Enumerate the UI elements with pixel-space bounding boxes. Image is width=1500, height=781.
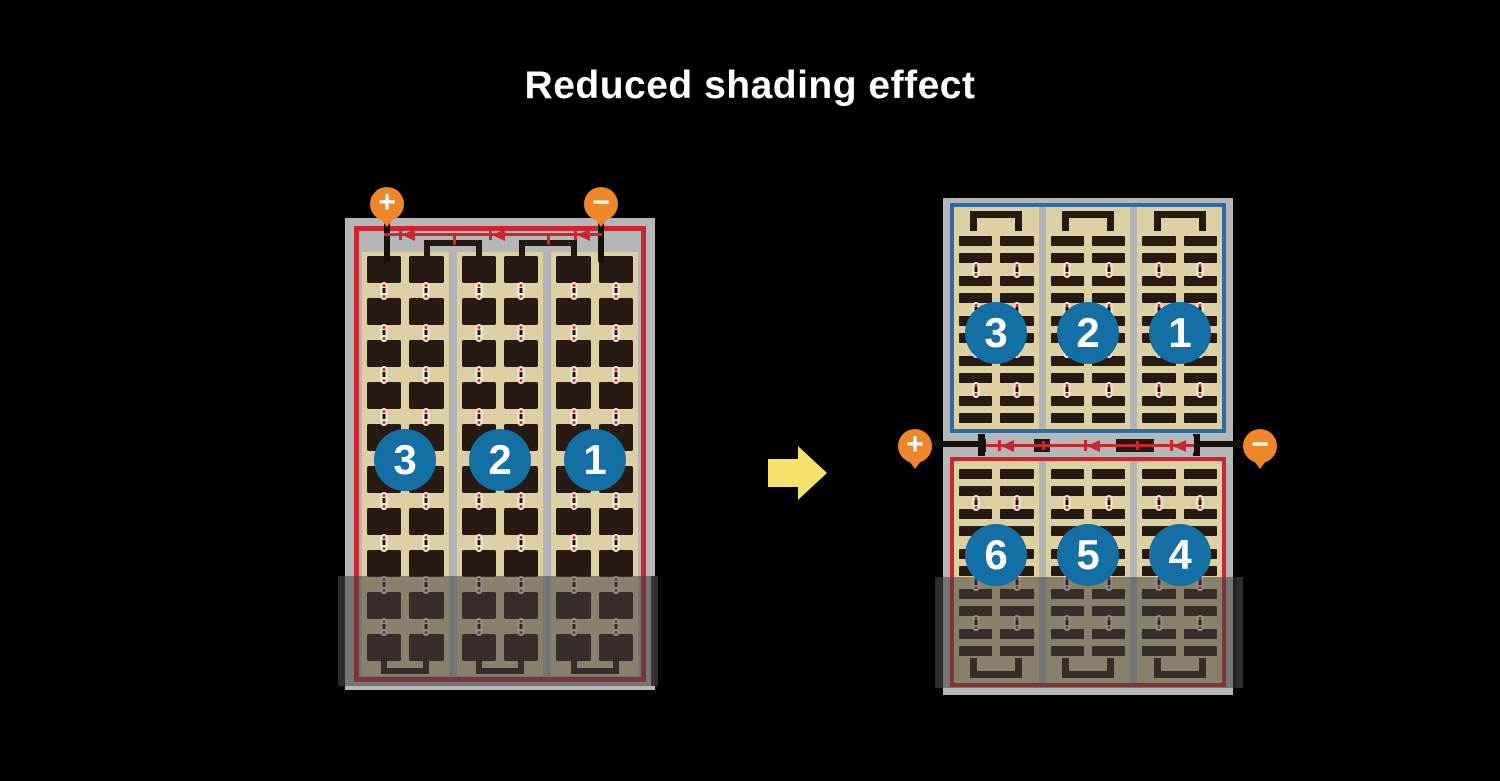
cell-interconnect-rivet bbox=[475, 282, 482, 300]
rivet-dot bbox=[425, 421, 428, 424]
half-cell-row bbox=[1142, 276, 1217, 286]
half-cut-cell bbox=[1092, 509, 1125, 519]
rivet-dot bbox=[1158, 273, 1161, 276]
minus-terminal-label: − bbox=[1251, 430, 1269, 460]
cell-interconnect-rivet bbox=[1013, 382, 1020, 398]
cell-row bbox=[367, 550, 444, 577]
string-number-badge: 2 bbox=[1057, 302, 1119, 364]
rivet-dot bbox=[520, 536, 523, 539]
half-cell-row bbox=[1142, 509, 1217, 519]
half-cut-cell bbox=[959, 413, 992, 423]
rivet-dot bbox=[1066, 273, 1069, 276]
cell-row bbox=[462, 550, 539, 577]
rivet-bar bbox=[1199, 387, 1202, 392]
half-cut-cell bbox=[1051, 396, 1084, 406]
rivet-dot bbox=[614, 295, 617, 298]
cell-interconnect-rivet bbox=[1197, 262, 1204, 278]
solar-cell bbox=[556, 340, 590, 367]
rivet-bar bbox=[477, 330, 480, 335]
half-cell-row bbox=[959, 413, 1034, 423]
half-cut-cell bbox=[1092, 413, 1125, 423]
rivet-dot bbox=[614, 547, 617, 550]
half-cut-cell bbox=[1051, 276, 1084, 286]
cell-interconnect-rivet bbox=[1156, 495, 1163, 511]
rivet-dot bbox=[1107, 506, 1110, 509]
cell-interconnect-rivet bbox=[612, 366, 619, 384]
solar-cell bbox=[367, 508, 401, 535]
rivet-dot bbox=[383, 536, 386, 539]
diode-triangle bbox=[402, 229, 415, 241]
rivet-dot bbox=[520, 379, 523, 382]
half-cut-cell bbox=[1184, 469, 1217, 479]
cell-interconnect-rivet bbox=[381, 366, 388, 384]
cell-interconnect-rivet bbox=[381, 408, 388, 426]
rivet-bar bbox=[1107, 387, 1110, 392]
rivet-dot bbox=[383, 379, 386, 382]
rivet-dot bbox=[477, 368, 480, 371]
rivet-bar bbox=[383, 498, 386, 503]
rivet-dot bbox=[477, 536, 480, 539]
solar-cell bbox=[504, 256, 538, 283]
half-cell-row bbox=[1051, 236, 1126, 246]
string-number-badge: 2 bbox=[469, 429, 531, 491]
cell-row bbox=[462, 382, 539, 409]
cell-interconnect-rivet bbox=[972, 262, 979, 278]
half-cut-cell bbox=[1000, 236, 1033, 246]
rivet-bar bbox=[614, 498, 617, 503]
cell-interconnect-rivet bbox=[1064, 262, 1071, 278]
half-cell-row bbox=[959, 236, 1034, 246]
cell-row bbox=[462, 298, 539, 325]
rivet-dot bbox=[520, 421, 523, 424]
rivet-dot bbox=[520, 368, 523, 371]
shade-overlay bbox=[338, 576, 658, 686]
cell-interconnect-rivet bbox=[475, 324, 482, 342]
rivet-dot bbox=[614, 421, 617, 424]
half-cut-cell bbox=[1184, 236, 1217, 246]
rivet-dot bbox=[614, 536, 617, 539]
half-cut-cell bbox=[1142, 509, 1175, 519]
cell-interconnect-rivet bbox=[381, 282, 388, 300]
cell-row bbox=[462, 508, 539, 535]
solar-cell bbox=[409, 298, 443, 325]
cell-row bbox=[367, 256, 444, 283]
solar-cell bbox=[367, 382, 401, 409]
half-cut-cell bbox=[1092, 236, 1125, 246]
rivet-bar bbox=[477, 498, 480, 503]
bypass-diode-icon bbox=[1084, 440, 1100, 452]
rivet-bar bbox=[383, 540, 386, 545]
rivet-dot bbox=[614, 284, 617, 287]
solar-cell bbox=[462, 508, 496, 535]
cell-interconnect-rivet bbox=[518, 282, 525, 300]
cell-interconnect-rivet bbox=[1156, 382, 1163, 398]
rivet-dot bbox=[974, 506, 977, 509]
rivet-dot bbox=[572, 410, 575, 413]
rivet-bar bbox=[1107, 267, 1110, 272]
rivet-bar bbox=[1015, 500, 1018, 505]
rivet-bar bbox=[614, 330, 617, 335]
half-cell-row bbox=[1051, 373, 1126, 383]
solar-cell bbox=[367, 340, 401, 367]
cell-interconnect-rivet bbox=[475, 534, 482, 552]
cell-interconnect-rivet bbox=[381, 324, 388, 342]
half-cell-row bbox=[1142, 486, 1217, 496]
half-cut-cell bbox=[1092, 469, 1125, 479]
cell-row bbox=[367, 508, 444, 535]
rivet-dot bbox=[520, 547, 523, 550]
cell-row bbox=[462, 340, 539, 367]
rivet-bar bbox=[1015, 267, 1018, 272]
rivet-dot bbox=[477, 326, 480, 329]
rivet-dot bbox=[383, 494, 386, 497]
solar-cell bbox=[599, 508, 633, 535]
solar-cell bbox=[599, 340, 633, 367]
diode-triangle bbox=[492, 229, 505, 241]
rivet-dot bbox=[572, 295, 575, 298]
rivet-dot bbox=[425, 337, 428, 340]
rivet-bar bbox=[974, 267, 977, 272]
rivet-bar bbox=[572, 498, 575, 503]
rivet-dot bbox=[1066, 393, 1069, 396]
rivet-bar bbox=[1158, 267, 1161, 272]
half-cut-cell bbox=[1051, 469, 1084, 479]
rivet-dot bbox=[1066, 506, 1069, 509]
cell-interconnect-rivet bbox=[1064, 382, 1071, 398]
rivet-dot bbox=[572, 494, 575, 497]
diode-triangle bbox=[1001, 440, 1014, 452]
cell-interconnect-rivet bbox=[423, 492, 430, 510]
rivet-dot bbox=[383, 284, 386, 287]
cell-interconnect-rivet bbox=[475, 366, 482, 384]
bypass-diode-line bbox=[384, 233, 602, 236]
half-cell-row bbox=[1142, 396, 1217, 406]
rivet-bar bbox=[1066, 267, 1069, 272]
half-cell-row bbox=[959, 486, 1034, 496]
cell-interconnect-rivet bbox=[570, 492, 577, 510]
string-top-connector bbox=[1154, 211, 1206, 231]
rivet-bar bbox=[425, 372, 428, 377]
cell-interconnect-rivet bbox=[381, 492, 388, 510]
rivet-dot bbox=[1199, 393, 1202, 396]
cell-interconnect-rivet bbox=[612, 324, 619, 342]
rivet-dot bbox=[614, 410, 617, 413]
minus-terminal-icon: − bbox=[584, 187, 618, 221]
rivet-dot bbox=[974, 273, 977, 276]
cell-row bbox=[556, 340, 633, 367]
half-cut-cell bbox=[959, 509, 992, 519]
bypass-diode-icon bbox=[574, 229, 590, 241]
rivet-dot bbox=[425, 295, 428, 298]
rivet-dot bbox=[572, 326, 575, 329]
rivet-bar bbox=[572, 372, 575, 377]
diode-line-stub bbox=[453, 236, 456, 245]
rivet-dot bbox=[425, 536, 428, 539]
solar-cell bbox=[409, 256, 443, 283]
rivet-dot bbox=[572, 379, 575, 382]
rivet-dot bbox=[614, 505, 617, 508]
rivet-dot bbox=[520, 326, 523, 329]
rivet-dot bbox=[614, 368, 617, 371]
half-cell-row bbox=[959, 373, 1034, 383]
rivet-dot bbox=[1107, 273, 1110, 276]
rivet-dot bbox=[477, 547, 480, 550]
plus-terminal-label: + bbox=[906, 430, 924, 460]
transition-arrow-head bbox=[798, 446, 827, 500]
cell-interconnect-rivet bbox=[570, 324, 577, 342]
cell-interconnect-rivet bbox=[423, 324, 430, 342]
half-cut-cell bbox=[1000, 469, 1033, 479]
cell-interconnect-rivet bbox=[423, 282, 430, 300]
rivet-dot bbox=[477, 410, 480, 413]
plus-terminal-label: + bbox=[378, 188, 396, 218]
solar-cell bbox=[556, 256, 590, 283]
rivet-dot bbox=[572, 284, 575, 287]
cell-interconnect-rivet bbox=[570, 534, 577, 552]
half-cell-row bbox=[1051, 276, 1126, 286]
solar-cell bbox=[409, 340, 443, 367]
diode-line-tick bbox=[1042, 441, 1045, 450]
rivet-dot bbox=[383, 337, 386, 340]
rivet-dot bbox=[383, 421, 386, 424]
rivet-bar bbox=[974, 387, 977, 392]
half-cut-cell bbox=[959, 276, 992, 286]
cell-interconnect-rivet bbox=[381, 534, 388, 552]
string-number-badge: 1 bbox=[564, 429, 626, 491]
rivet-dot bbox=[572, 505, 575, 508]
bypass-diode-line bbox=[986, 444, 1194, 447]
half-cell-row bbox=[1142, 236, 1217, 246]
rivet-bar bbox=[1199, 267, 1202, 272]
rivet-dot bbox=[477, 379, 480, 382]
cell-interconnect-rivet bbox=[423, 534, 430, 552]
solar-cell bbox=[556, 382, 590, 409]
rivet-dot bbox=[520, 494, 523, 497]
cell-row bbox=[367, 382, 444, 409]
half-cut-cell bbox=[1000, 413, 1033, 423]
half-cell-row bbox=[959, 276, 1034, 286]
rivet-bar bbox=[1158, 500, 1161, 505]
half-cut-cell bbox=[1184, 509, 1217, 519]
rivet-bar bbox=[383, 414, 386, 419]
rivet-bar bbox=[425, 330, 428, 335]
bypass-diode-icon bbox=[489, 229, 505, 241]
cell-interconnect-rivet bbox=[1197, 382, 1204, 398]
rivet-bar bbox=[520, 288, 523, 293]
cell-row bbox=[367, 340, 444, 367]
rivet-dot bbox=[383, 295, 386, 298]
rivet-dot bbox=[477, 494, 480, 497]
rivet-dot bbox=[425, 410, 428, 413]
rivet-bar bbox=[572, 540, 575, 545]
cell-interconnect-rivet bbox=[475, 492, 482, 510]
cell-interconnect-rivet bbox=[1197, 495, 1204, 511]
half-cut-cell bbox=[1142, 236, 1175, 246]
rivet-dot bbox=[1199, 506, 1202, 509]
cell-row bbox=[556, 256, 633, 283]
half-cut-cell bbox=[1092, 396, 1125, 406]
rivet-dot bbox=[477, 284, 480, 287]
half-cut-cell bbox=[1092, 276, 1125, 286]
cell-interconnect-rivet bbox=[612, 534, 619, 552]
minus-terminal-label: − bbox=[592, 188, 610, 218]
solar-cell bbox=[409, 382, 443, 409]
half-cell-row bbox=[1051, 413, 1126, 423]
cell-row bbox=[556, 550, 633, 577]
solar-cell bbox=[599, 298, 633, 325]
solar-cell bbox=[556, 298, 590, 325]
cell-interconnect-rivet bbox=[1156, 262, 1163, 278]
half-cut-cell bbox=[1184, 276, 1217, 286]
rivet-dot bbox=[520, 505, 523, 508]
rivet-dot bbox=[614, 379, 617, 382]
cell-row bbox=[556, 298, 633, 325]
solar-cell bbox=[599, 382, 633, 409]
solar-cell bbox=[409, 550, 443, 577]
string-divider bbox=[1039, 207, 1046, 429]
solar-cell bbox=[462, 340, 496, 367]
rivet-dot bbox=[1015, 506, 1018, 509]
string-top-connector bbox=[1062, 211, 1114, 231]
rivet-dot bbox=[1158, 506, 1161, 509]
rivet-bar bbox=[614, 372, 617, 377]
rivet-bar bbox=[1015, 387, 1018, 392]
rivet-dot bbox=[614, 326, 617, 329]
rivet-dot bbox=[477, 421, 480, 424]
cell-interconnect-rivet bbox=[1013, 262, 1020, 278]
rivet-bar bbox=[477, 414, 480, 419]
diagram-title: Reduced shading effect bbox=[0, 64, 1500, 108]
rivet-bar bbox=[520, 540, 523, 545]
rivet-dot bbox=[425, 494, 428, 497]
half-cell-row bbox=[1051, 396, 1126, 406]
shade-overlay bbox=[935, 577, 1243, 688]
half-cut-cell bbox=[1000, 509, 1033, 519]
cell-interconnect-rivet bbox=[475, 408, 482, 426]
half-cell-row bbox=[1051, 253, 1126, 263]
diode-triangle bbox=[1173, 440, 1186, 452]
cell-interconnect-rivet bbox=[518, 366, 525, 384]
rivet-bar bbox=[477, 288, 480, 293]
half-cut-cell bbox=[1051, 509, 1084, 519]
string-divider bbox=[1130, 207, 1137, 429]
solar-cell bbox=[599, 550, 633, 577]
rivet-bar bbox=[425, 540, 428, 545]
transition-arrow bbox=[768, 459, 799, 487]
rivet-dot bbox=[1158, 393, 1161, 396]
solar-cell bbox=[462, 256, 496, 283]
string-number-badge: 4 bbox=[1149, 524, 1211, 586]
rivet-dot bbox=[477, 505, 480, 508]
rivet-bar bbox=[383, 372, 386, 377]
half-cut-cell bbox=[959, 236, 992, 246]
rivet-dot bbox=[1015, 393, 1018, 396]
cell-interconnect-rivet bbox=[518, 534, 525, 552]
rivet-bar bbox=[1066, 387, 1069, 392]
half-cut-cell bbox=[959, 396, 992, 406]
cell-interconnect-rivet bbox=[570, 408, 577, 426]
half-cut-cell bbox=[1051, 413, 1084, 423]
half-cell-row bbox=[1051, 469, 1126, 479]
rivet-dot bbox=[572, 337, 575, 340]
rivet-dot bbox=[383, 547, 386, 550]
positive-lead-wire bbox=[930, 441, 985, 447]
rivet-bar bbox=[520, 414, 523, 419]
rivet-bar bbox=[477, 372, 480, 377]
rivet-bar bbox=[572, 330, 575, 335]
rivet-dot bbox=[572, 536, 575, 539]
solar-cell bbox=[462, 382, 496, 409]
rivet-dot bbox=[1107, 393, 1110, 396]
rivet-dot bbox=[425, 547, 428, 550]
half-cell-row bbox=[1142, 373, 1217, 383]
rivet-bar bbox=[614, 540, 617, 545]
rivet-dot bbox=[425, 284, 428, 287]
rivet-bar bbox=[1158, 387, 1161, 392]
cell-interconnect-rivet bbox=[612, 492, 619, 510]
half-cut-cell bbox=[1142, 276, 1175, 286]
cell-interconnect-rivet bbox=[423, 408, 430, 426]
diode-line-stub bbox=[547, 236, 550, 245]
solar-cell bbox=[556, 550, 590, 577]
half-cut-cell bbox=[1184, 413, 1217, 423]
rivet-dot bbox=[425, 379, 428, 382]
rivet-dot bbox=[425, 368, 428, 371]
rivet-bar bbox=[520, 330, 523, 335]
negative-lead-wire bbox=[1198, 441, 1245, 447]
diode-triangle bbox=[577, 229, 590, 241]
rivet-dot bbox=[520, 337, 523, 340]
cell-interconnect-rivet bbox=[518, 408, 525, 426]
rivet-dot bbox=[572, 368, 575, 371]
solar-cell bbox=[462, 550, 496, 577]
rivet-dot bbox=[572, 421, 575, 424]
rivet-dot bbox=[383, 410, 386, 413]
cell-interconnect-rivet bbox=[570, 366, 577, 384]
string-number-badge: 3 bbox=[965, 302, 1027, 364]
cell-interconnect-rivet bbox=[1064, 495, 1071, 511]
rivet-bar bbox=[614, 288, 617, 293]
solar-cell bbox=[504, 340, 538, 367]
rivet-dot bbox=[614, 337, 617, 340]
bypass-diode-icon bbox=[1170, 440, 1186, 452]
solar-cell bbox=[367, 550, 401, 577]
half-cell-row bbox=[959, 509, 1034, 519]
cell-row bbox=[462, 256, 539, 283]
plus-terminal-icon: + bbox=[898, 429, 932, 463]
solar-cell bbox=[409, 508, 443, 535]
solar-cell bbox=[367, 298, 401, 325]
rivet-bar bbox=[1066, 500, 1069, 505]
cell-interconnect-rivet bbox=[1105, 495, 1112, 511]
half-cell-row bbox=[1142, 413, 1217, 423]
cell-row bbox=[556, 382, 633, 409]
rivet-bar bbox=[572, 288, 575, 293]
solar-cell bbox=[504, 508, 538, 535]
cell-interconnect-rivet bbox=[518, 492, 525, 510]
cell-interconnect-rivet bbox=[1105, 382, 1112, 398]
cell-interconnect-rivet bbox=[570, 282, 577, 300]
rivet-dot bbox=[383, 368, 386, 371]
rivet-dot bbox=[425, 505, 428, 508]
half-cell-row bbox=[1051, 486, 1126, 496]
cell-interconnect-rivet bbox=[612, 282, 619, 300]
string-number-badge: 3 bbox=[374, 429, 436, 491]
rivet-bar bbox=[614, 414, 617, 419]
rivet-dot bbox=[383, 326, 386, 329]
half-cut-cell bbox=[1142, 469, 1175, 479]
cell-interconnect-rivet bbox=[423, 366, 430, 384]
